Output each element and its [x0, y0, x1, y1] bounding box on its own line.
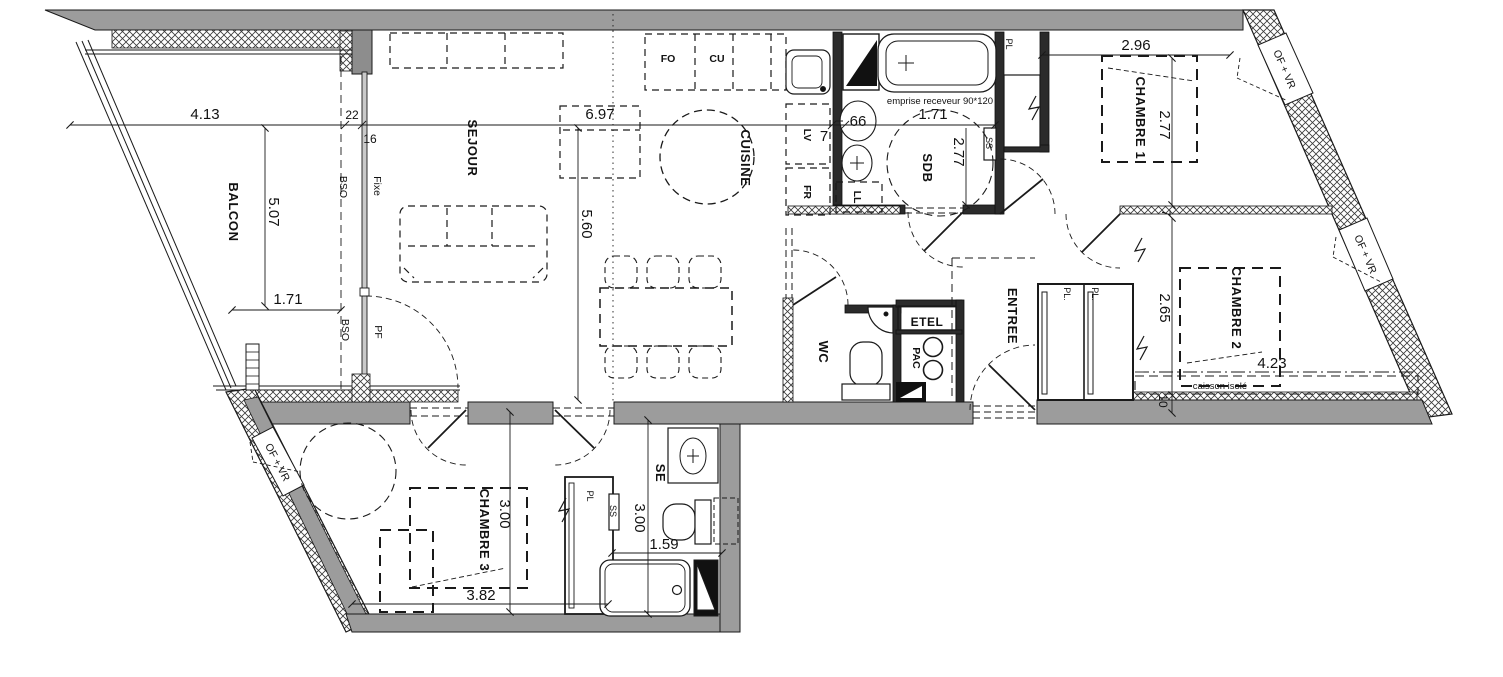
floor-plan-page: BALCON SEJOUR CUISINE SDB CHAMBRE 1 CHAM…	[0, 0, 1503, 677]
note-pl-se: PL	[585, 490, 595, 501]
eq-cu: CU	[709, 53, 724, 65]
note-ss-se: SS	[608, 505, 618, 517]
room-label-cuisine: CUISINE	[738, 130, 753, 187]
floor-plan-drawing: BALCON SEJOUR CUISINE SDB CHAMBRE 1 CHAM…	[0, 0, 1503, 677]
dim-basin-66: 66	[850, 113, 867, 130]
dim-ch2-width: 4.23	[1257, 355, 1286, 372]
eq-fr: FR	[801, 185, 813, 199]
dim-sdb-width: 1.71	[918, 106, 947, 123]
dim-ch2-wall: 10	[1156, 394, 1170, 408]
dimension-lines	[70, 14, 1415, 614]
room-label-chambre3: CHAMBRE 3	[477, 489, 492, 572]
dim-se-depth: 3.00	[631, 503, 648, 532]
eq-pac: PAC	[910, 347, 922, 369]
dim-balcon-inner: 1.71	[273, 291, 302, 308]
room-label-wc: WC	[816, 341, 831, 364]
room-label-se: SE	[653, 464, 668, 483]
dim-wall-22: 22	[345, 108, 359, 122]
dim-cuisine-wall: 7	[820, 128, 828, 145]
note-caisson: caisson isolé	[1193, 381, 1247, 392]
note-pl-entree-2: PL.	[1090, 287, 1100, 301]
eq-etel: ETEL	[911, 315, 944, 329]
note-fixe: Fixe	[371, 176, 383, 196]
dim-ch3-width: 3.82	[466, 587, 495, 604]
room-label-chambre1: CHAMBRE 1	[1133, 77, 1148, 160]
room-label-sejour: SEJOUR	[465, 119, 480, 176]
closet-entree	[1038, 284, 1133, 400]
closet-chambre1	[1004, 75, 1040, 147]
note-ss-sdb: SS	[984, 137, 994, 149]
dim-ch1-depth: 2.77	[1156, 110, 1173, 139]
dim-ch2-depth: 2.65	[1156, 293, 1173, 322]
dim-ch1-width: 2.96	[1121, 37, 1150, 54]
eq-fo: FO	[661, 53, 676, 65]
doors	[250, 58, 1381, 522]
room-label-chambre2: CHAMBRE 2	[1229, 267, 1244, 350]
dim-wall-16: 16	[363, 132, 377, 146]
note-pl-ch1: PL	[1004, 38, 1014, 49]
room-label-sdb: SDB	[920, 153, 935, 182]
dim-se-width: 1.59	[649, 536, 678, 553]
note-pl-entree-1: PL.	[1062, 287, 1072, 301]
dim-sdb-depth: 2.77	[950, 137, 967, 166]
eq-lv: LV	[801, 129, 813, 142]
toilet-se	[663, 504, 695, 540]
note-bso-a: BSO	[337, 176, 349, 198]
eq-ll: LL	[851, 191, 863, 204]
note-pf: PF	[372, 325, 384, 338]
dim-balcon-width: 4.13	[190, 106, 219, 123]
dim-ch1-wall: 7	[1159, 210, 1173, 217]
dim-sejour-depth: 5.60	[578, 209, 595, 238]
toilet-wc	[850, 342, 882, 386]
room-label-entree: ENTREE	[1005, 288, 1020, 344]
dim-ch3-depth: 3.00	[496, 499, 513, 528]
note-bso-b: BSO	[339, 319, 351, 341]
note-emprise: emprise receveur 90*120	[887, 96, 993, 107]
dim-balcon-depth: 5.07	[265, 197, 282, 226]
dim-sejour-width: 6.97	[585, 106, 614, 123]
room-label-balcon: BALCON	[226, 182, 241, 241]
